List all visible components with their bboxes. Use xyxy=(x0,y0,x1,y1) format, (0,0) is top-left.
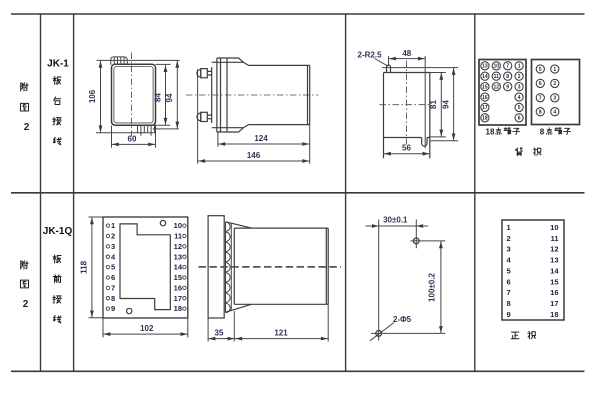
svg-text:11: 11 xyxy=(551,234,559,243)
svg-text:11: 11 xyxy=(174,232,182,241)
svg-text:146: 146 xyxy=(247,151,261,160)
svg-text:4: 4 xyxy=(518,95,521,101)
svg-text:15: 15 xyxy=(482,84,488,90)
svg-text:9: 9 xyxy=(111,304,115,313)
svg-text:8: 8 xyxy=(540,128,545,137)
svg-text:10: 10 xyxy=(550,223,558,232)
svg-text:2: 2 xyxy=(111,232,115,241)
svg-text:56: 56 xyxy=(402,144,411,153)
svg-text:JK-1: JK-1 xyxy=(47,58,69,69)
svg-text:1: 1 xyxy=(111,221,115,230)
svg-text:35: 35 xyxy=(215,328,224,337)
svg-text:2: 2 xyxy=(24,122,30,133)
svg-text:18: 18 xyxy=(486,128,495,137)
svg-text:5: 5 xyxy=(518,105,521,111)
svg-text:10: 10 xyxy=(494,64,500,70)
svg-text:84: 84 xyxy=(154,93,163,102)
svg-text:18: 18 xyxy=(174,304,182,313)
svg-text:16: 16 xyxy=(482,95,488,101)
svg-text:102: 102 xyxy=(140,324,154,333)
svg-text:2: 2 xyxy=(553,81,556,87)
svg-text:6: 6 xyxy=(539,81,542,87)
svg-text:3: 3 xyxy=(507,245,511,254)
svg-text:60: 60 xyxy=(128,134,137,143)
svg-text:5: 5 xyxy=(111,263,115,272)
svg-text:7: 7 xyxy=(507,288,511,297)
svg-text:9: 9 xyxy=(506,84,509,90)
svg-text:2: 2 xyxy=(23,299,29,310)
svg-text:11: 11 xyxy=(494,74,500,80)
svg-text:94: 94 xyxy=(442,100,451,109)
svg-text:18: 18 xyxy=(550,310,558,319)
svg-text:12: 12 xyxy=(550,245,558,254)
svg-text:2-Φ5: 2-Φ5 xyxy=(393,315,412,324)
svg-text:14: 14 xyxy=(174,263,183,272)
svg-text:13: 13 xyxy=(174,252,182,261)
svg-text:18: 18 xyxy=(482,116,488,122)
svg-text:17: 17 xyxy=(174,294,182,303)
svg-text:118: 118 xyxy=(79,260,88,273)
svg-text:12: 12 xyxy=(494,84,500,90)
svg-text:5: 5 xyxy=(539,67,542,73)
svg-text:17: 17 xyxy=(482,105,488,111)
svg-text:8: 8 xyxy=(111,294,115,303)
svg-text:6: 6 xyxy=(507,277,511,286)
svg-text:8: 8 xyxy=(506,74,509,80)
svg-text:6: 6 xyxy=(518,116,521,122)
svg-text:121: 121 xyxy=(274,328,288,337)
svg-text:6: 6 xyxy=(111,273,115,282)
svg-text:1: 1 xyxy=(507,223,511,232)
svg-text:2: 2 xyxy=(518,74,521,80)
svg-text:3: 3 xyxy=(553,96,556,102)
svg-text:8: 8 xyxy=(507,299,511,308)
svg-text:7: 7 xyxy=(506,64,509,70)
svg-text:15: 15 xyxy=(174,273,182,282)
svg-text:3: 3 xyxy=(518,84,521,90)
svg-text:94: 94 xyxy=(165,93,174,102)
svg-text:2: 2 xyxy=(507,234,511,243)
svg-text:14: 14 xyxy=(550,266,559,275)
svg-text:48: 48 xyxy=(402,49,411,58)
svg-text:7: 7 xyxy=(111,284,115,293)
svg-text:124: 124 xyxy=(254,134,268,143)
svg-text:8: 8 xyxy=(539,110,542,116)
svg-text:81: 81 xyxy=(429,100,438,109)
svg-text:2-R2.5: 2-R2.5 xyxy=(358,51,383,60)
svg-text:106: 106 xyxy=(88,89,97,103)
svg-text:13: 13 xyxy=(550,256,558,265)
svg-text:15: 15 xyxy=(550,277,558,286)
svg-text:12: 12 xyxy=(174,242,182,251)
svg-text:16: 16 xyxy=(174,284,182,293)
svg-text:5: 5 xyxy=(507,266,511,275)
svg-text:10: 10 xyxy=(174,221,182,230)
svg-text:JK-1Q: JK-1Q xyxy=(43,226,73,237)
svg-text:13: 13 xyxy=(482,64,488,70)
svg-text:1: 1 xyxy=(518,64,521,70)
svg-text:30±0.1: 30±0.1 xyxy=(383,216,408,225)
svg-text:14: 14 xyxy=(482,74,488,80)
svg-text:9: 9 xyxy=(507,310,511,319)
svg-text:16: 16 xyxy=(550,288,558,297)
svg-text:4: 4 xyxy=(553,110,556,116)
svg-text:1: 1 xyxy=(553,67,556,73)
svg-text:17: 17 xyxy=(550,299,558,308)
svg-text:3: 3 xyxy=(111,242,115,251)
svg-text:7: 7 xyxy=(539,96,542,102)
svg-text:100±0.2: 100±0.2 xyxy=(428,273,437,302)
